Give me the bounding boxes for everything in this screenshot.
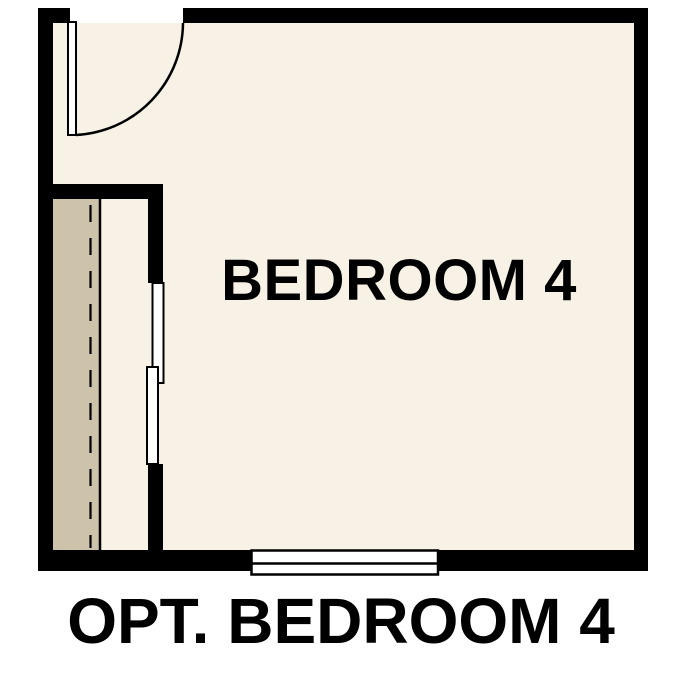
wall-top-segment <box>183 8 648 23</box>
closet-jamb-lower <box>148 464 163 550</box>
wall-right <box>634 8 648 571</box>
plan-caption: OPT. BEDROOM 4 <box>41 589 641 653</box>
floor-plan-drawing <box>0 0 687 687</box>
floor-plan-figure: BEDROOM 4 OPT. BEDROOM 4 <box>0 0 687 687</box>
closet-jamb-upper <box>148 199 163 283</box>
wall-left <box>38 8 53 571</box>
closet-floor-area <box>53 199 99 550</box>
closet-bypass-door-inner-panel <box>147 367 158 464</box>
entry-door-leaf <box>68 22 76 135</box>
room-label: BEDROOM 4 <box>199 252 599 310</box>
closet-front-wall <box>38 184 163 199</box>
